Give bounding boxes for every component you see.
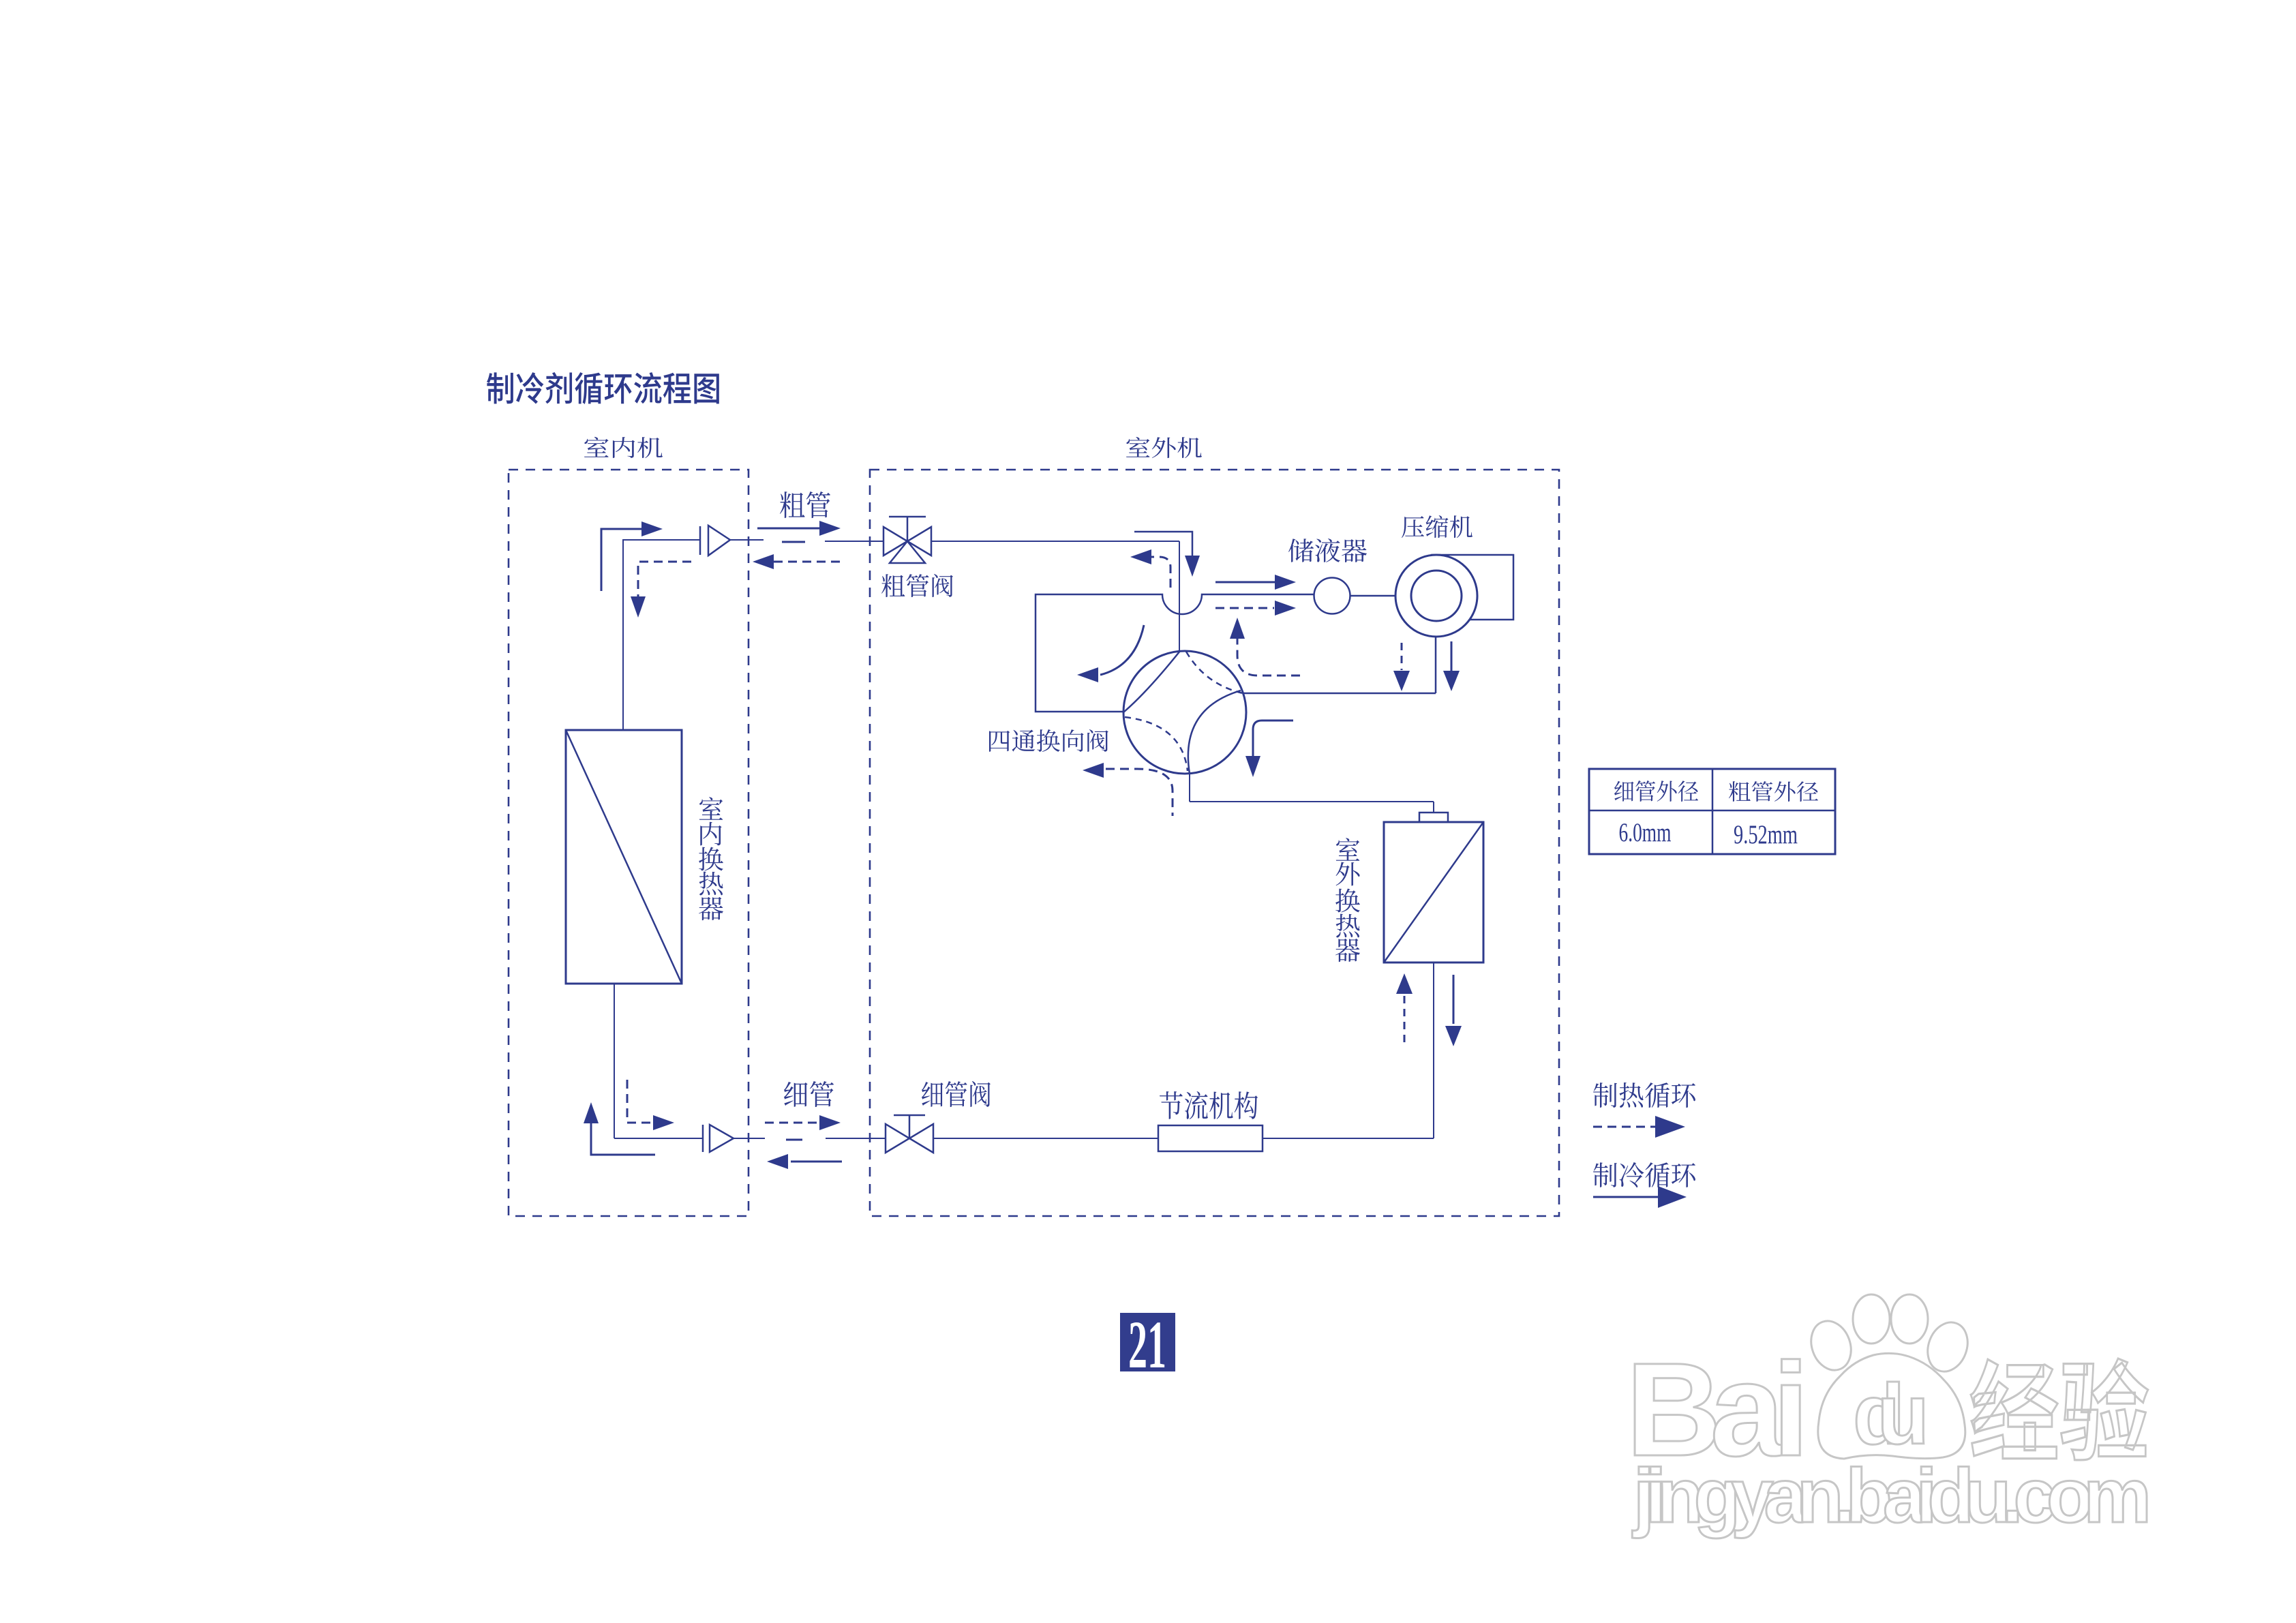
svg-text:jingyan.baidu.com: jingyan.baidu.com xyxy=(1632,1453,2151,1538)
svg-text:6.0mm: 6.0mm xyxy=(1619,818,1672,847)
svg-text:du: du xyxy=(1853,1367,1929,1462)
svg-text:21: 21 xyxy=(1128,1308,1166,1383)
svg-text:9.52mm: 9.52mm xyxy=(1734,820,1798,849)
